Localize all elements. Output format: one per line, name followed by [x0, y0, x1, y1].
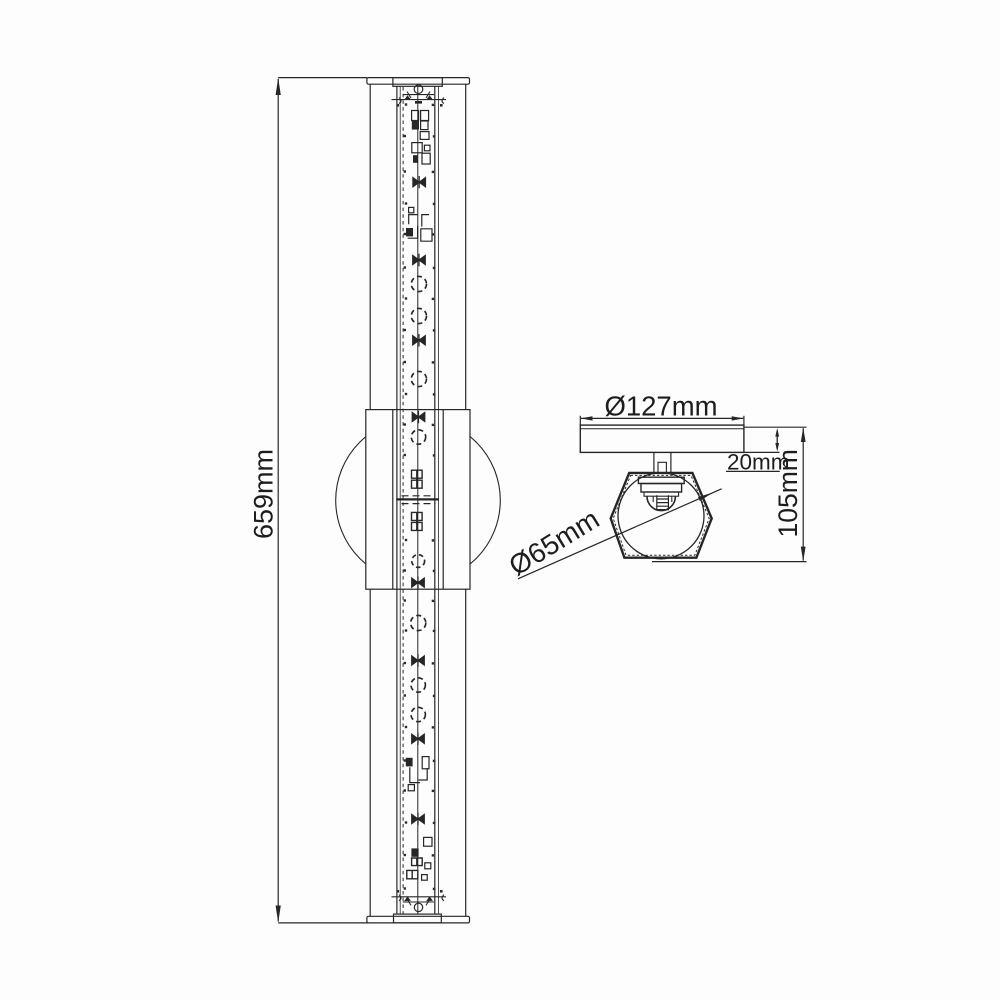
svg-text:659mm: 659mm [249, 449, 279, 539]
svg-text:105mm: 105mm [773, 449, 803, 537]
svg-text:Ø127mm: Ø127mm [604, 391, 717, 422]
